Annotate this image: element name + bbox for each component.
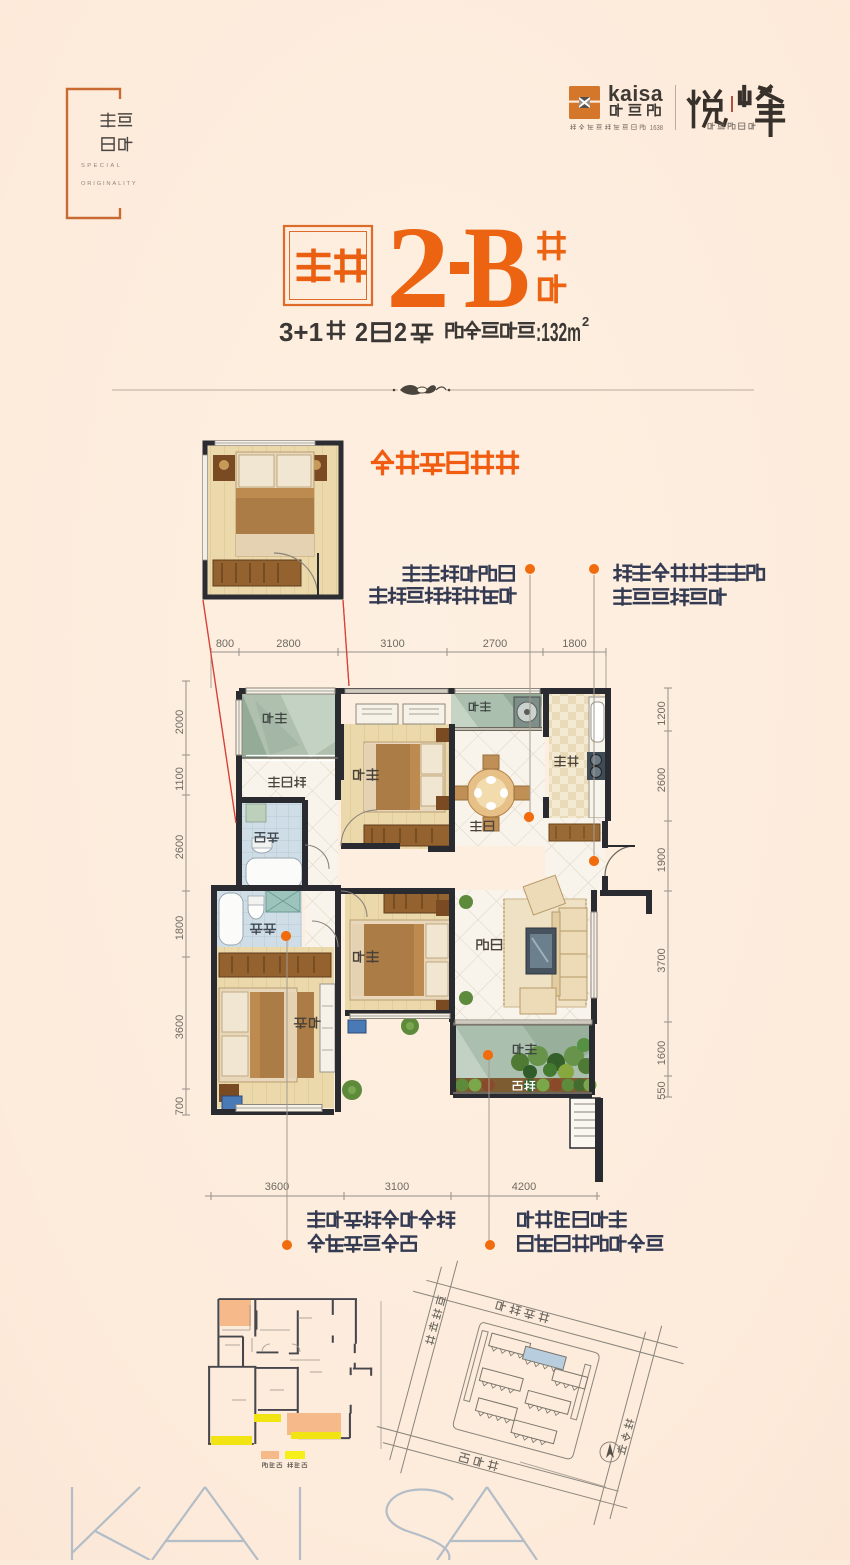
svg-text:550: 550 [656, 1081, 668, 1099]
svg-text:2: 2 [394, 317, 407, 347]
svg-text:1800: 1800 [562, 638, 586, 650]
svg-text:1900: 1900 [656, 848, 668, 872]
svg-text:2600: 2600 [174, 835, 186, 859]
svg-text:4200: 4200 [512, 1181, 536, 1193]
svg-text:3100: 3100 [385, 1181, 409, 1193]
svg-text:700: 700 [174, 1097, 186, 1115]
svg-text:kaisa: kaisa [608, 81, 663, 106]
svg-text:3700: 3700 [656, 948, 668, 972]
svg-text:2800: 2800 [276, 638, 300, 650]
svg-text:2000: 2000 [174, 710, 186, 734]
svg-text:2600: 2600 [656, 768, 668, 792]
svg-text:SPECIAL: SPECIAL [81, 163, 122, 169]
svg-text:1600: 1600 [656, 1041, 668, 1065]
svg-text:1800: 1800 [174, 916, 186, 940]
svg-text:3100: 3100 [380, 638, 404, 650]
svg-text:2: 2 [582, 314, 589, 329]
svg-text:2: 2 [386, 202, 450, 333]
svg-text:3600: 3600 [265, 1181, 289, 1193]
svg-text:2: 2 [355, 317, 368, 347]
svg-text:2700: 2700 [483, 638, 507, 650]
svg-text:3+1: 3+1 [279, 317, 323, 347]
svg-text:1200: 1200 [656, 701, 668, 725]
svg-text:1100: 1100 [174, 767, 186, 791]
svg-text:800: 800 [216, 638, 234, 650]
svg-text::132m: :132m [536, 317, 581, 347]
svg-text:3600: 3600 [174, 1015, 186, 1039]
svg-text:ORIGINALITY: ORIGINALITY [81, 181, 138, 187]
svg-text:B: B [464, 202, 530, 333]
svg-text:1638: 1638 [650, 125, 663, 132]
